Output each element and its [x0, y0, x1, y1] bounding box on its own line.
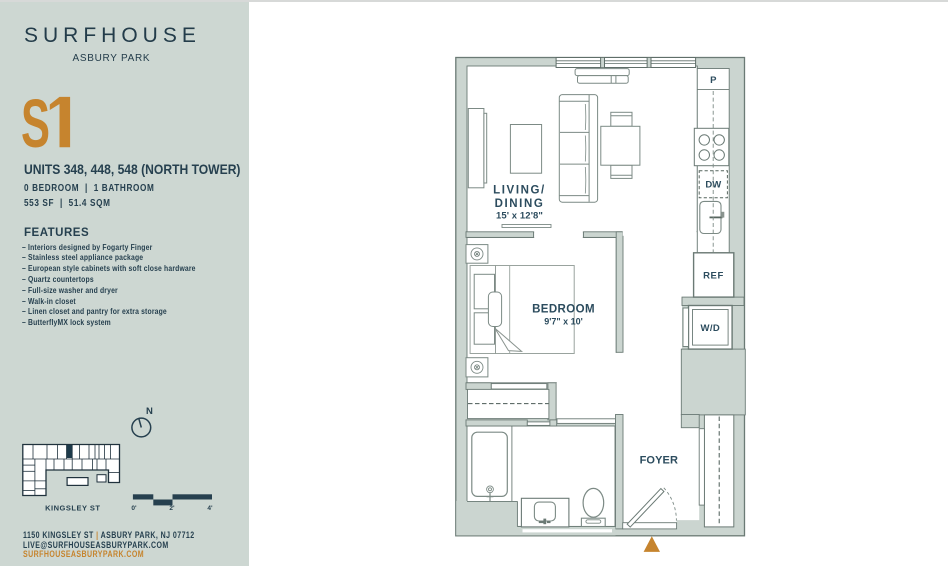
svg-text:W/D: W/D: [700, 323, 720, 334]
svg-text:LIVING/: LIVING/: [493, 185, 546, 197]
svg-text:DINING: DINING: [495, 198, 545, 210]
svg-text:9'7" x 10': 9'7" x 10': [544, 317, 583, 327]
svg-text:15' x 12'8": 15' x 12'8": [496, 211, 543, 222]
svg-text:BEDROOM: BEDROOM: [532, 304, 595, 316]
svg-text:P: P: [710, 75, 717, 86]
svg-text:REF: REF: [703, 271, 724, 282]
svg-text:FOYER: FOYER: [640, 455, 678, 467]
